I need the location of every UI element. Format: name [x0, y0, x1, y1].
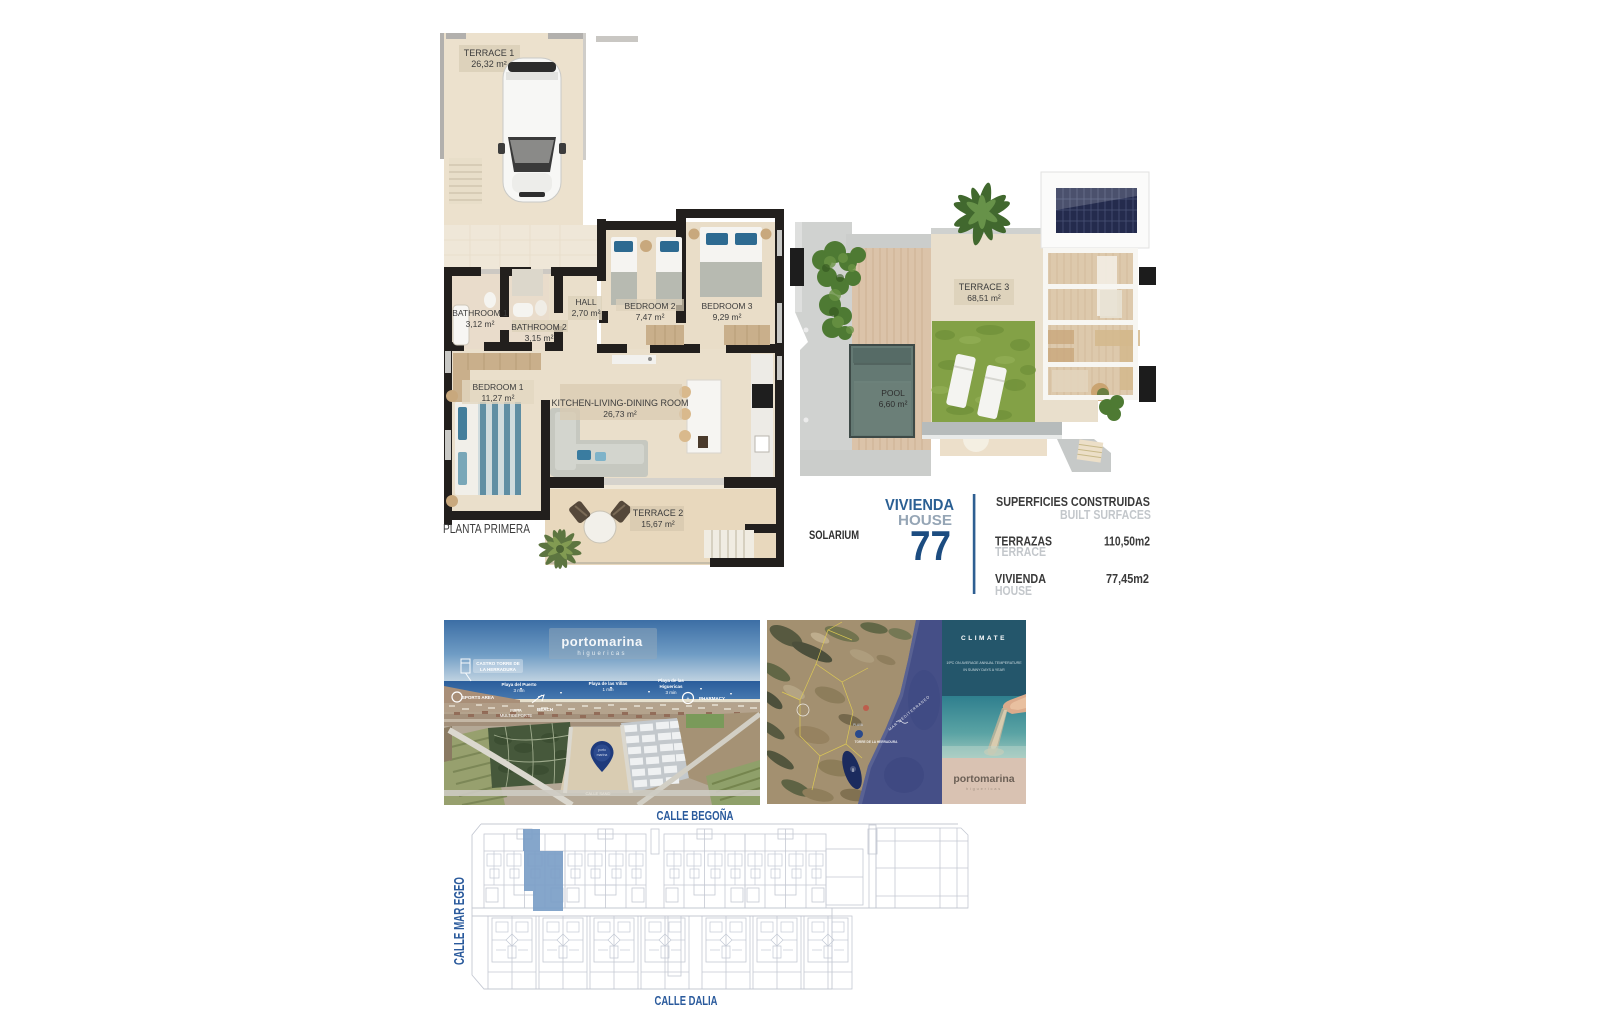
- svg-text:PLAYA: PLAYA: [853, 723, 864, 727]
- svg-text:CASTRO TORRE DE: CASTRO TORRE DE: [476, 661, 519, 666]
- svg-text:BATHROOM 2: BATHROOM 2: [511, 322, 567, 332]
- svg-text:77: 77: [910, 522, 951, 569]
- svg-text:CALLE SAND: CALLE SAND: [586, 791, 611, 796]
- svg-text:7,47 m²: 7,47 m²: [636, 312, 665, 322]
- svg-text:6,60 m²: 6,60 m²: [879, 399, 908, 409]
- svg-text:HALL: HALL: [575, 297, 597, 307]
- svg-text:BEDROOM 2: BEDROOM 2: [624, 301, 675, 311]
- svg-text:15,67 m²: 15,67 m²: [641, 519, 675, 529]
- svg-text:CALLE BEGOÑA: CALLE BEGOÑA: [657, 808, 734, 823]
- svg-text:+: +: [687, 696, 690, 702]
- svg-text:CALLE MAR EGEO: CALLE MAR EGEO: [451, 877, 468, 965]
- svg-text:KITCHEN-LIVING-DINING ROOM: KITCHEN-LIVING-DINING ROOM: [551, 398, 688, 408]
- svg-text:19ºC ON AVERAGE ANNUAL TEMPERA: 19ºC ON AVERAGE ANNUAL TEMPERATURE: [946, 661, 1022, 665]
- svg-text:HOUSE: HOUSE: [995, 584, 1032, 598]
- svg-text:Higuericas: Higuericas: [659, 684, 683, 689]
- svg-text:TERRACE 1: TERRACE 1: [464, 48, 515, 58]
- svg-text:9,29 m²: 9,29 m²: [713, 312, 742, 322]
- svg-text:portomarina: portomarina: [953, 773, 1014, 785]
- svg-text:26,32 m²: 26,32 m²: [471, 59, 507, 69]
- svg-text:BEACH: BEACH: [537, 707, 553, 712]
- svg-text:110,50m2: 110,50m2: [1104, 535, 1150, 549]
- svg-text:3,15 m²: 3,15 m²: [525, 333, 554, 343]
- svg-text:3 min: 3 min: [513, 688, 525, 693]
- svg-text:PHARMACY: PHARMACY: [699, 696, 725, 701]
- svg-text:IN SUNNY DAYS A YEAR: IN SUNNY DAYS A YEAR: [963, 668, 1005, 672]
- svg-text:SPORTS AREA: SPORTS AREA: [462, 695, 495, 700]
- svg-text:TORRE DE LA HERRADURA: TORRE DE LA HERRADURA: [855, 740, 899, 744]
- svg-text:77,45m2: 77,45m2: [1106, 572, 1149, 586]
- svg-text:BEDROOM 1: BEDROOM 1: [472, 382, 523, 392]
- svg-text:3,12 m²: 3,12 m²: [466, 319, 495, 329]
- svg-text:TERRACE 3: TERRACE 3: [959, 282, 1010, 292]
- svg-text:porto: porto: [598, 748, 606, 752]
- svg-text:Playa del Puerto: Playa del Puerto: [501, 682, 536, 687]
- svg-text:Playa de las: Playa de las: [658, 678, 684, 683]
- svg-text:POOL: POOL: [881, 388, 905, 398]
- svg-text:higuericas: higuericas: [966, 786, 1002, 791]
- svg-text:TERRACE 2: TERRACE 2: [633, 508, 684, 518]
- svg-text:TERRACE: TERRACE: [995, 545, 1046, 559]
- svg-text:11,27 m²: 11,27 m²: [482, 393, 515, 403]
- svg-text:Playa de las Villas: Playa de las Villas: [589, 681, 628, 686]
- svg-text:68,51 m²: 68,51 m²: [967, 293, 1001, 303]
- svg-text:BATHROOM 1: BATHROOM 1: [452, 308, 508, 318]
- svg-text:portomarina: portomarina: [561, 634, 643, 649]
- svg-text:2,70 m²: 2,70 m²: [572, 308, 601, 318]
- svg-text:CLIMATE: CLIMATE: [961, 635, 1007, 642]
- svg-text:SOLARIUM: SOLARIUM: [809, 528, 859, 542]
- svg-text:BUILT SURFACES: BUILT SURFACES: [1060, 508, 1151, 522]
- svg-text:marina: marina: [597, 753, 608, 757]
- svg-text:1 min: 1 min: [602, 687, 614, 692]
- svg-text:higuericas: higuericas: [577, 651, 626, 657]
- svg-text:26,73 m²: 26,73 m²: [603, 409, 637, 419]
- svg-text:MULTIDEPORTE: MULTIDEPORTE: [500, 713, 533, 718]
- svg-text:PLANTA PRIMERA: PLANTA PRIMERA: [443, 521, 530, 536]
- svg-text:VIVIENDA: VIVIENDA: [885, 497, 954, 514]
- svg-text:SUPERFICIES CONSTRUIDAS: SUPERFICIES CONSTRUIDAS: [996, 495, 1150, 509]
- svg-text:BEDROOM 3: BEDROOM 3: [701, 301, 752, 311]
- svg-text:LA HERRADURA: LA HERRADURA: [480, 667, 517, 672]
- svg-text:3 min: 3 min: [665, 690, 677, 695]
- svg-text:CALLE DALIA: CALLE DALIA: [655, 994, 718, 1008]
